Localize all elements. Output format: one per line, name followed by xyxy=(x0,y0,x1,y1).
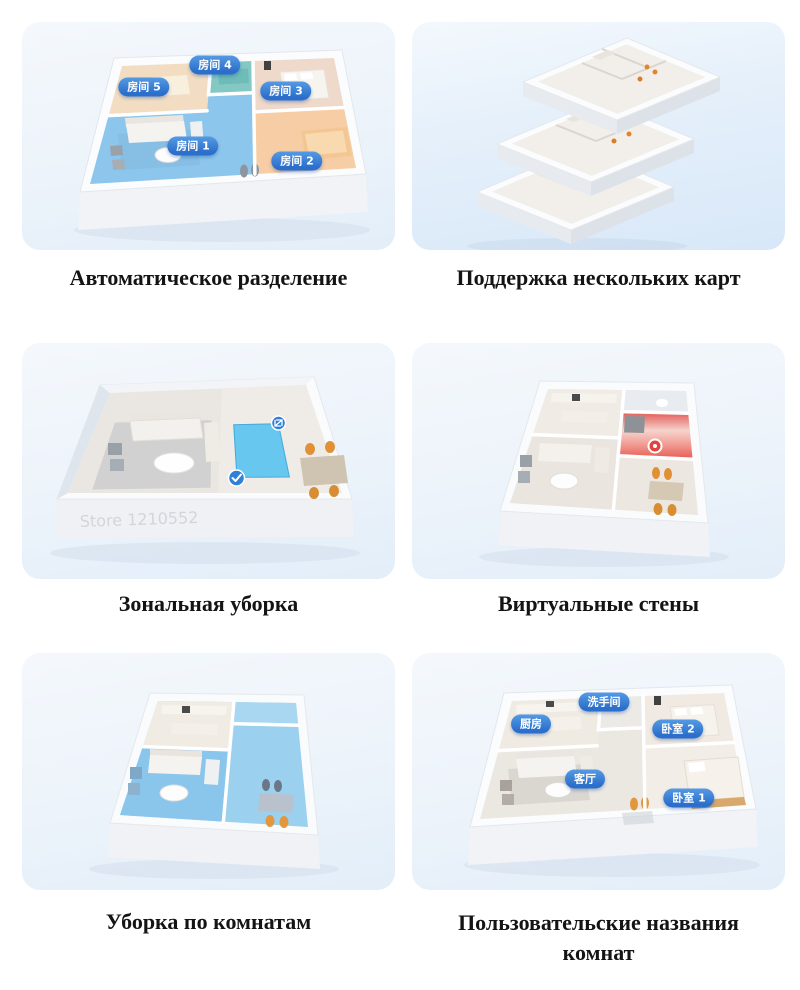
feature-custom-names: 洗手间 厨房 卧室 2 客厅 卧室 1 Пользовательские наз… xyxy=(412,653,785,968)
stacked-maps-illustration xyxy=(412,22,785,250)
auto-partition-card: 房间 4 房间 5 房间 3 房间 1 房间 2 xyxy=(22,22,395,250)
resize-arrows-icon xyxy=(272,416,286,430)
room-badge: 房间 5 xyxy=(118,78,169,97)
feature-multi-map: Поддержка нескольких карт xyxy=(412,22,785,292)
room-badge: 房间 2 xyxy=(271,152,322,171)
room-badge: 客厅 xyxy=(565,770,605,789)
room-badge: 卧室 1 xyxy=(663,789,714,808)
virtual-walls-card xyxy=(412,343,785,579)
room-badge: 房间 3 xyxy=(260,82,311,101)
feature-caption: Пользовательские названия комнат xyxy=(434,908,764,968)
zone-cleaning-illustration: Store 1210552 xyxy=(22,343,395,579)
zone-cleaning-card: Store 1210552 xyxy=(22,343,395,579)
product-feature-sheet: { "colors": { "badge_blue": "#2e6fce", "… xyxy=(0,0,800,990)
feature-caption: Поддержка нескольких карт xyxy=(412,264,785,292)
virtual-walls-illustration xyxy=(412,343,785,579)
feature-caption: Виртуальные стены xyxy=(412,590,785,618)
room-cleaning-illustration xyxy=(22,653,395,890)
room-badge: 房间 4 xyxy=(189,56,240,75)
feature-virtual-walls: Виртуальные стены xyxy=(412,343,785,618)
room-badge: 卧室 2 xyxy=(652,720,703,739)
room-cleaning-card xyxy=(22,653,395,890)
room-badge: 洗手间 xyxy=(579,693,630,712)
room-badge: 厨房 xyxy=(511,715,551,734)
feature-caption: Уборка по комнатам xyxy=(22,908,395,936)
check-icon xyxy=(229,470,245,486)
robot-marker-icon xyxy=(649,440,662,453)
custom-names-card: 洗手间 厨房 卧室 2 客厅 卧室 1 xyxy=(412,653,785,890)
feature-room-cleaning: Уборка по комнатам xyxy=(22,653,395,936)
feature-caption: Автоматическое разделение xyxy=(22,264,395,292)
room-badge: 房间 1 xyxy=(167,137,218,156)
feature-caption: Зональная уборка xyxy=(22,590,395,618)
feature-auto-partition: 房间 4 房间 5 房间 3 房间 1 房间 2 Автоматическое … xyxy=(22,22,395,292)
multi-map-card xyxy=(412,22,785,250)
feature-zone-cleaning: Store 1210552 Зональная уборка xyxy=(22,343,395,618)
